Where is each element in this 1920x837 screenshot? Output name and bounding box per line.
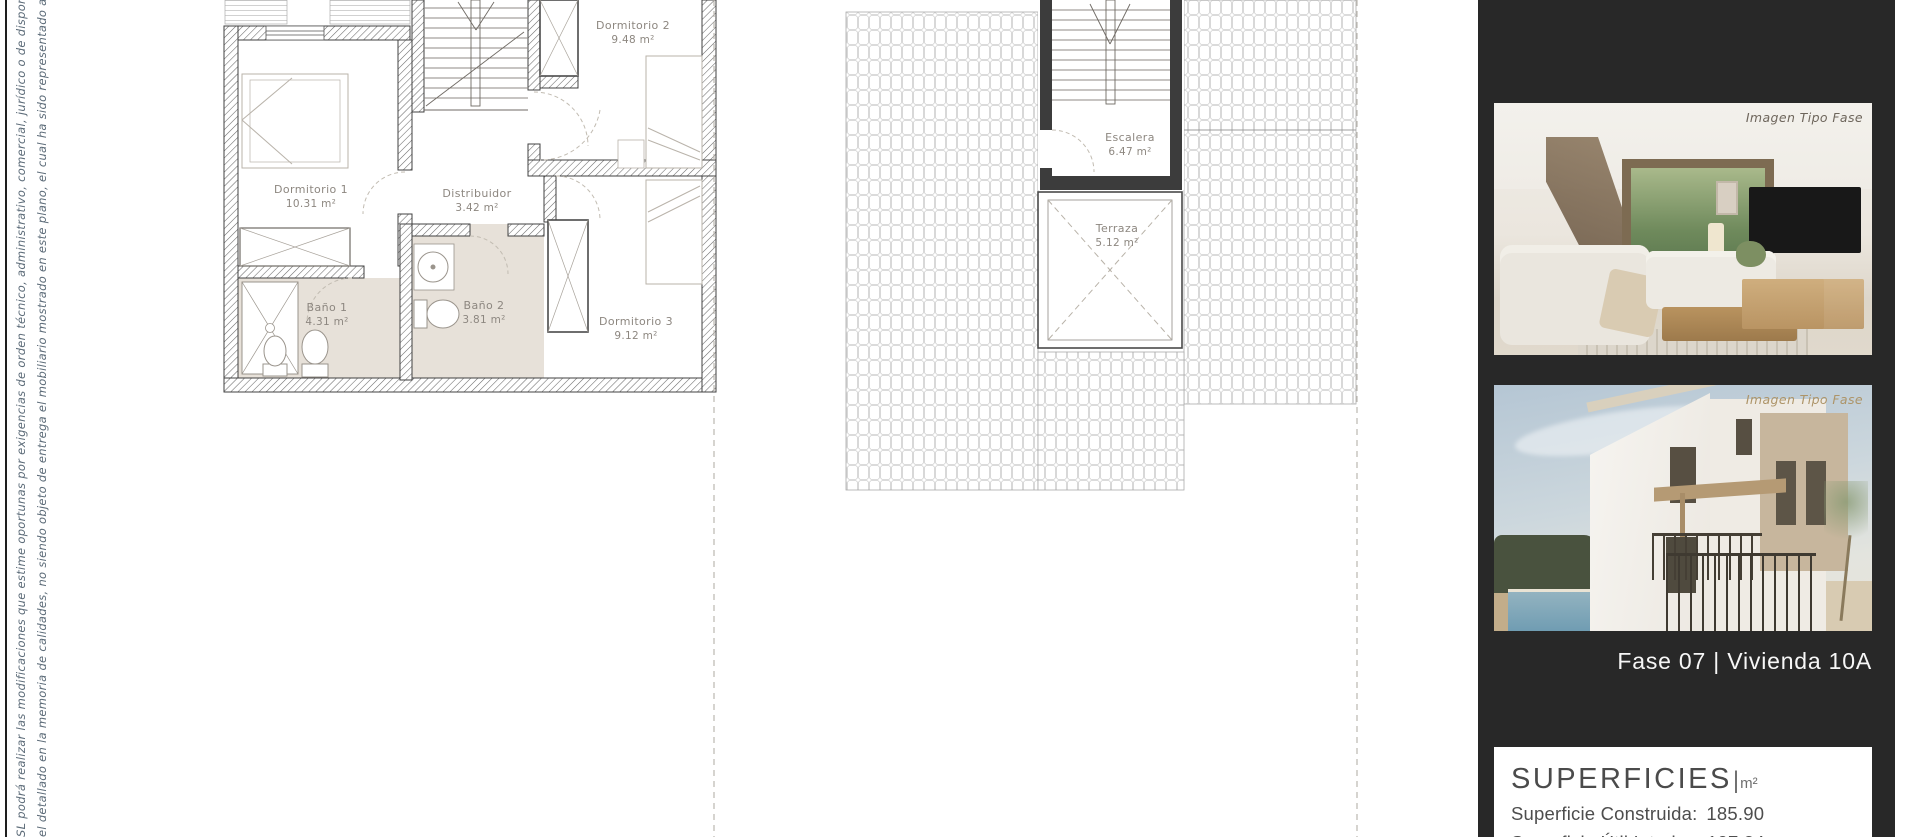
sink-bath2 [414,244,454,290]
surface-row-useful: Superficie Útil Interior:107.34 [1511,832,1872,837]
exterior-tree [1824,481,1868,551]
surface-useful-label: Superficie Útil Interior: [1511,832,1698,837]
roof-tiles-bottom [1038,352,1184,490]
surface-row-built: Superficie Construida:185.90 [1511,803,1872,825]
exterior-window [1776,461,1796,525]
surfaces-title-unit: m² [1740,775,1758,792]
first-floor-plan: Dormitorio 1 10.31 m² Dormitorio 2 9.48 … [224,0,716,392]
info-sidebar: Imagen Tipo Fase Imagen [1478,0,1895,837]
surface-useful-value: 107.34 [1707,832,1765,837]
surface-built-label: Superficie Construida: [1511,803,1697,824]
interior-wall-art [1716,181,1738,215]
interior-render-image: Imagen Tipo Fase [1494,103,1872,355]
room-label-dorm1: Dormitorio 1 [274,183,348,196]
exterior-fence-railing [1666,553,1816,631]
interior-plant [1736,241,1766,267]
surface-built-value: 185.90 [1706,803,1764,824]
bed-dorm1 [242,74,348,168]
image-type-badge-1: Imagen Tipo Fase [1746,110,1863,125]
roof-plan: Escalera 6.47 m² Terraza 5.12 m² [846,0,1356,490]
room-area-dorm2: 9.48 m² [611,34,654,46]
room-area-dorm1: 10.31 m² [286,198,336,210]
room-label-distribuidor: Distribuidor [442,187,511,200]
room-label-dorm2: Dormitorio 2 [596,19,670,32]
phase-dwelling-label: Fase 07 | Vivienda 10A [1492,648,1872,675]
staircase [424,0,528,110]
room-area-terraza: 5.12 m² [1095,237,1138,249]
surfaces-card: SUPERFICIES|m² Superficie Construida:185… [1494,747,1872,837]
room-area-dorm3: 9.12 m² [614,330,657,342]
toilet-bath1 [302,330,328,377]
surfaces-title: SUPERFICIES|m² [1511,763,1872,796]
surfaces-title-pipe: | [1733,767,1739,795]
room-area-bath1: 4.31 m² [305,316,348,328]
room-label-bath2: Baño 2 [464,299,505,312]
bed-dorm2 [618,56,702,168]
window [266,26,324,40]
exterior-render-image: Imagen Tipo Fase [1494,385,1872,631]
wardrobe-dorm3 [548,220,588,332]
room-label-escalera: Escalera [1105,131,1155,144]
room-label-bath1: Baño 1 [307,301,348,314]
room-area-distribuidor: 3.42 m² [455,202,498,214]
exterior-hedge [1494,535,1598,593]
exterior-window [1736,419,1752,455]
room-area-escalera: 6.47 m² [1108,146,1151,158]
interior-tv [1749,187,1861,253]
floor-plans-drawing: Dormitorio 1 10.31 m² Dormitorio 2 9.48 … [0,0,1478,837]
terraza-box [1038,192,1182,348]
interior-sideboard [1742,279,1864,329]
room-label-terraza: Terraza [1095,222,1139,235]
bed-dorm3 [646,180,702,284]
image-type-badge-2: Imagen Tipo Fase [1746,392,1863,407]
toilet-bath2 [414,300,459,328]
roof-tiles-left [846,12,1038,490]
exterior-window [1806,461,1826,525]
plan-sheet: SL podrá realizar las modificaciones que… [0,0,1920,837]
wardrobe-dorm2 [540,0,578,76]
room-label-dorm3: Dormitorio 3 [599,315,673,328]
surfaces-title-text: SUPERFICIES [1511,763,1732,796]
room-area-bath2: 3.81 m² [462,314,505,326]
wardrobe-dorm1 [240,228,350,266]
bidet-bath1 [263,336,287,376]
roof-tiles-right [1184,0,1356,404]
